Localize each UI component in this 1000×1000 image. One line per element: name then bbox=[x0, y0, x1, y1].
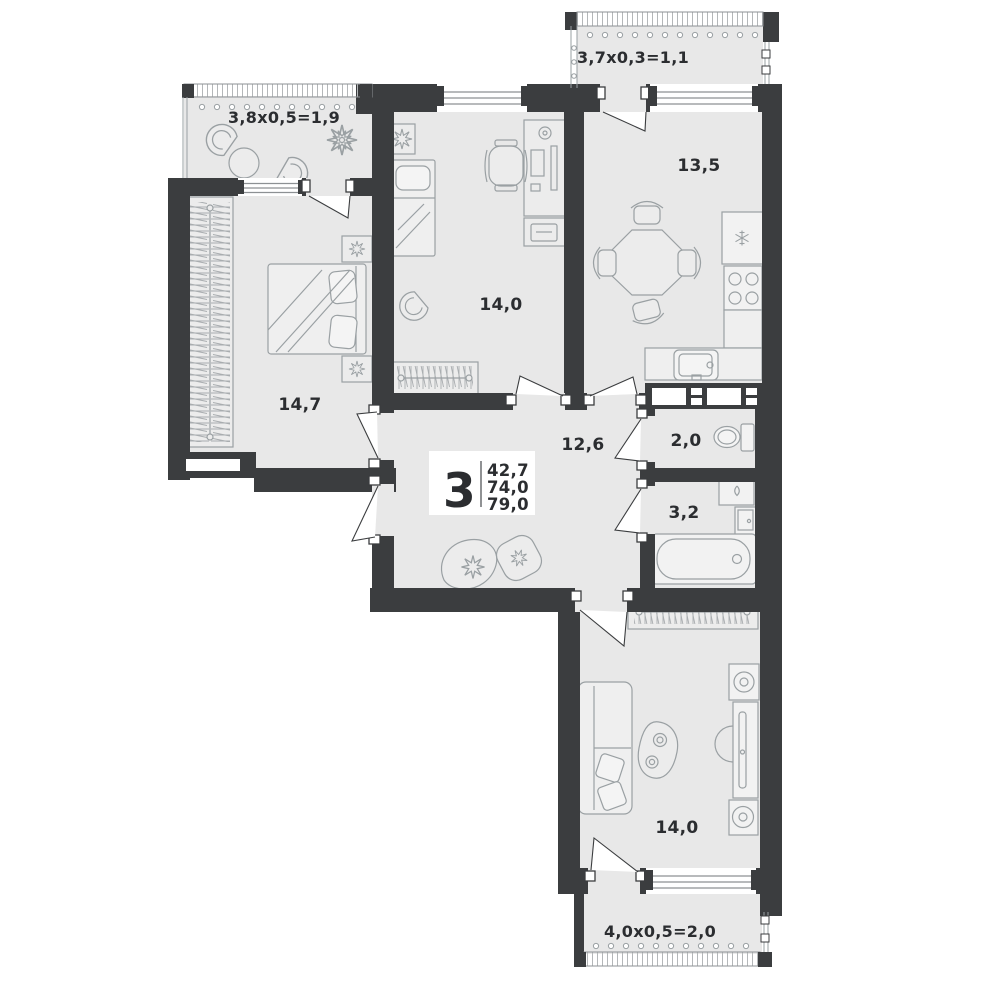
nightstand-plant-bottom bbox=[342, 356, 372, 382]
wardrobe-middle-room bbox=[392, 362, 478, 394]
stove bbox=[724, 266, 762, 310]
floor-bedroom-ext bbox=[254, 454, 372, 470]
desk bbox=[524, 120, 568, 216]
window-kitchen bbox=[648, 84, 761, 112]
double-bed bbox=[268, 264, 366, 354]
label-bathroom: 3,2 bbox=[668, 503, 699, 523]
kitchen-sink bbox=[674, 350, 718, 380]
balcony-table bbox=[229, 148, 259, 178]
floor-plan-svg: 3 42,7 74,0 79,0 3,8х0,5=1,9 14,7 14,0 3… bbox=[0, 0, 1000, 1000]
window-room-middle bbox=[435, 84, 530, 112]
fridge bbox=[722, 212, 763, 264]
floor-plan-page: 3 42,7 74,0 79,0 3,8х0,5=1,9 14,7 14,0 3… bbox=[0, 0, 1000, 1000]
label-kitchen: 13,5 bbox=[677, 156, 720, 176]
label-bedroom: 14,7 bbox=[278, 395, 321, 415]
label-room-middle: 14,0 bbox=[479, 295, 522, 315]
nightstand-plant-top bbox=[342, 236, 372, 262]
window-living bbox=[644, 868, 760, 894]
label-balcony-top-right: 3,7х0,3=1,1 bbox=[577, 48, 689, 67]
wardrobe-bedroom bbox=[187, 197, 233, 447]
washing-machine bbox=[719, 478, 754, 505]
speaker-bottom bbox=[729, 800, 758, 835]
printer-table bbox=[524, 218, 568, 246]
speaker-top bbox=[729, 664, 759, 700]
sofa bbox=[578, 682, 632, 814]
kitchen-counter-right bbox=[724, 310, 762, 348]
legend-area-total: 79,0 bbox=[487, 495, 529, 514]
bedroom-niche bbox=[186, 459, 240, 471]
legend-block: 3 42,7 74,0 79,0 bbox=[429, 451, 535, 519]
label-balcony-bottom: 4,0х0,5=2,0 bbox=[604, 922, 716, 941]
label-hallway: 12,6 bbox=[561, 435, 604, 455]
label-living: 14,0 bbox=[655, 818, 698, 838]
legend-rooms-count: 3 bbox=[443, 464, 476, 519]
single-bed bbox=[391, 160, 435, 256]
bath-sink bbox=[735, 507, 756, 535]
label-balcony-top-left: 3,8х0,5=1,9 bbox=[228, 108, 340, 127]
window-bedroom-balcony bbox=[236, 178, 306, 196]
label-wc: 2,0 bbox=[670, 431, 701, 451]
bathtub bbox=[652, 534, 756, 584]
